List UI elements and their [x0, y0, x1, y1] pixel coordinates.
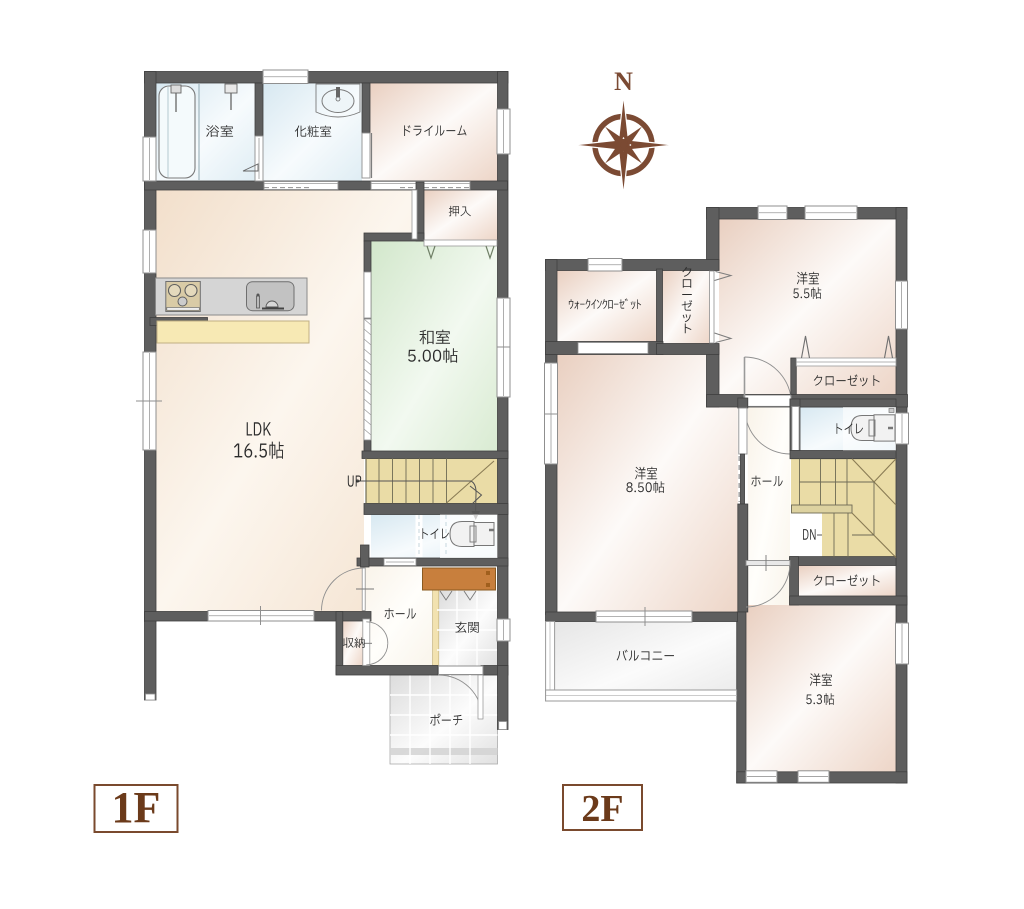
svg-text:2F: 2F [581, 788, 623, 830]
svg-text:1F: 1F [112, 783, 161, 832]
svg-text:N: N [614, 67, 633, 96]
